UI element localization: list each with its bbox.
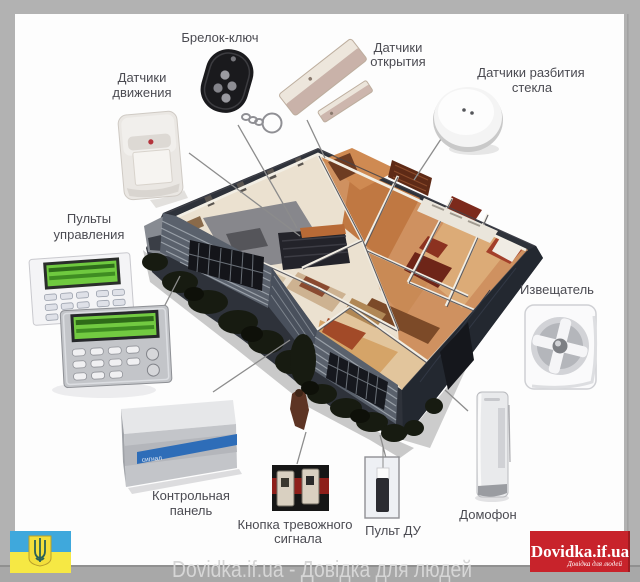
svg-text:Довідка для людей: Довідка для людей xyxy=(566,560,622,568)
svg-text:Пульт ДУ: Пульт ДУ xyxy=(365,523,421,538)
svg-text:открытия: открытия xyxy=(370,54,425,69)
svg-text:Датчики: Датчики xyxy=(118,70,167,85)
svg-text:сигнала: сигнала xyxy=(274,531,322,546)
svg-text:управления: управления xyxy=(54,227,125,242)
svg-text:Пульты: Пульты xyxy=(67,211,111,226)
svg-text:Брелок-ключ: Брелок-ключ xyxy=(181,30,258,45)
svg-text:Датчики разбития: Датчики разбития xyxy=(477,65,584,80)
svg-text:движения: движения xyxy=(112,85,171,100)
svg-text:Кнопка тревожного: Кнопка тревожного xyxy=(238,517,353,532)
svg-text:Dovidka.if.ua - Довідка для лю: Dovidka.if.ua - Довідка для людей xyxy=(172,556,472,582)
svg-text:панель: панель xyxy=(170,503,213,518)
svg-text:Контрольная: Контрольная xyxy=(152,488,230,503)
svg-text:Dovidka.if.ua: Dovidka.if.ua xyxy=(531,542,630,561)
svg-text:Датчики: Датчики xyxy=(374,40,423,55)
svg-text:Извещатель: Извещатель xyxy=(520,282,594,297)
svg-text:Домофон: Домофон xyxy=(459,507,516,522)
svg-text:стекла: стекла xyxy=(512,80,553,95)
